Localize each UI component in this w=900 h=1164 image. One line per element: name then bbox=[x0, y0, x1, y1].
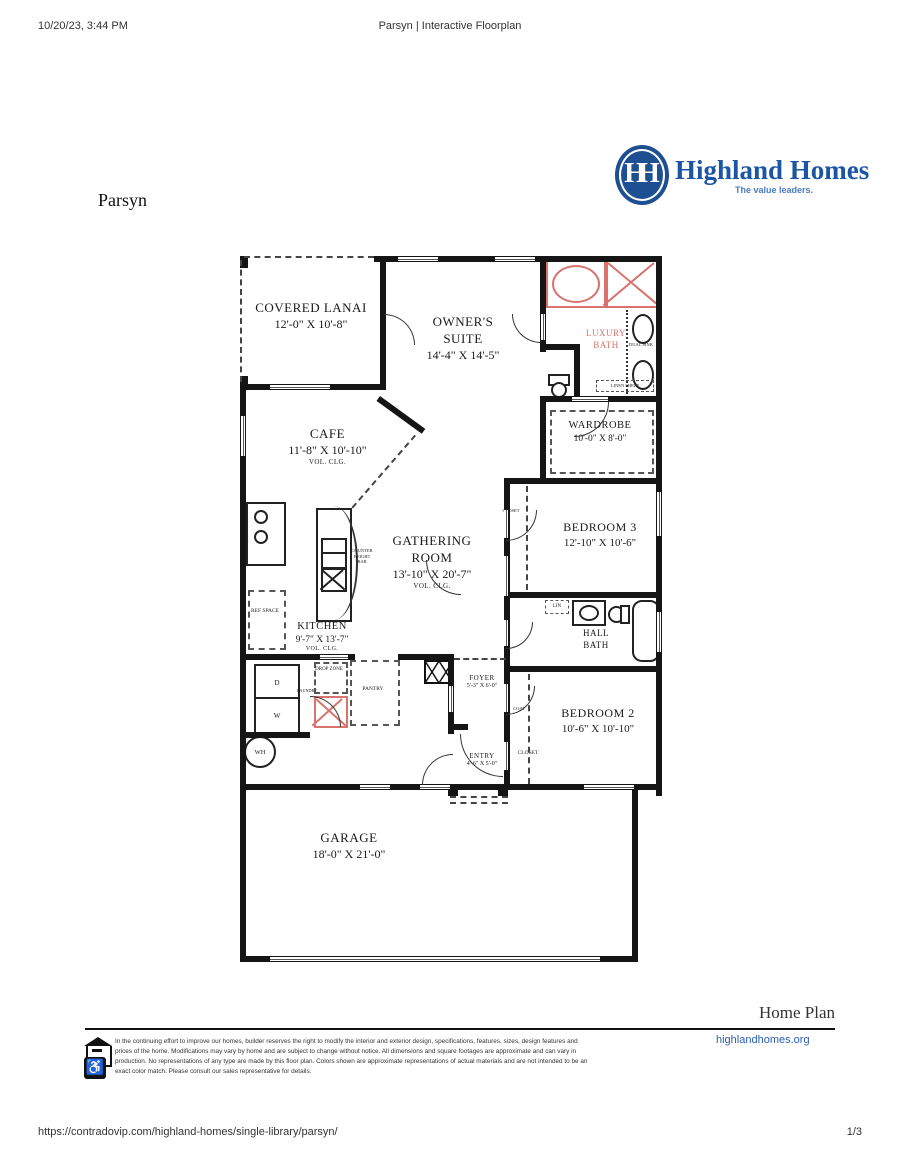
porch-dashed-line bbox=[450, 802, 508, 804]
window-opening bbox=[270, 385, 330, 389]
cooktop-burner-icon bbox=[254, 510, 268, 524]
room-name: BEDROOM 3 bbox=[540, 520, 660, 536]
room-dims: 12'-0" X 10'-8" bbox=[248, 317, 374, 333]
window-pane-line bbox=[506, 742, 507, 770]
room-luxury-bath: LUXURY BATH bbox=[582, 328, 630, 351]
room-hall-bath: HALL BATH bbox=[570, 628, 622, 651]
room-bedroom2: BEDROOM 2 10'-6" X 10'-10" bbox=[538, 706, 658, 736]
lin-label: LIN bbox=[545, 600, 569, 614]
room-dims: 18'-0" X 21'-0" bbox=[284, 847, 414, 863]
wall bbox=[504, 666, 662, 672]
washer-label: W bbox=[274, 712, 281, 720]
window-pane-line bbox=[420, 787, 450, 788]
logo-oval-icon: HH bbox=[615, 145, 669, 205]
dual-sink-label: DUAL SINK bbox=[628, 342, 654, 348]
wall bbox=[240, 790, 246, 962]
window-pane-line bbox=[270, 387, 330, 388]
room-name: FOYER bbox=[454, 674, 510, 683]
closet-front-line bbox=[526, 486, 528, 590]
window-pane-line bbox=[506, 556, 507, 596]
lanai-screen-line bbox=[244, 256, 374, 258]
sink-icon bbox=[632, 314, 654, 344]
brand-tagline: The value leaders. bbox=[675, 185, 813, 195]
room-dims: 10'-6" X 10'-10" bbox=[538, 722, 658, 736]
room-bedroom3: BEDROOM 3 12'-10" X 10'-6" bbox=[540, 520, 660, 550]
sink-icon bbox=[572, 600, 606, 626]
window-pane-line bbox=[659, 492, 660, 536]
room-name: BEDROOM 2 bbox=[538, 706, 658, 722]
window-pane-line bbox=[320, 657, 348, 658]
room-covered-lanai: COVERED LANAI 12'-0" X 10'-8" bbox=[248, 300, 374, 332]
page-title: Parsyn bbox=[98, 190, 147, 211]
disclaimer-text: In the continuing effort to improve our … bbox=[115, 1037, 593, 1077]
window-opening bbox=[584, 785, 634, 789]
dryer-label: D bbox=[274, 679, 279, 687]
print-url: https://contradovip.com/highland-homes/s… bbox=[38, 1126, 338, 1138]
print-preview-page: { "header": { "datetime": "10/20/23, 3:4… bbox=[0, 0, 900, 1164]
brand-logo: HH Highland Homes The value leaders. bbox=[615, 145, 815, 207]
window-opening bbox=[449, 686, 453, 712]
washer-box: W bbox=[254, 697, 300, 734]
print-title: Parsyn | Interactive Floorplan bbox=[0, 20, 900, 32]
room-name: LUXURY BATH bbox=[582, 328, 630, 351]
wall bbox=[450, 724, 468, 730]
accessibility-icon: ♿ bbox=[84, 1057, 106, 1079]
floor-plan: DUAL SINK LINEN SHELF COUNTER HEIGHT BAR… bbox=[240, 256, 670, 968]
cooktop-burner-icon bbox=[254, 530, 268, 544]
room-name: CAFE bbox=[265, 426, 390, 443]
window-opening bbox=[657, 612, 661, 652]
window-opening bbox=[270, 957, 600, 961]
window-opening bbox=[241, 416, 245, 456]
toilet-icon bbox=[620, 605, 630, 624]
window-pane-line bbox=[659, 612, 660, 652]
pantry-label: PANTRY bbox=[351, 686, 395, 693]
room-note: VOL. CLG. bbox=[265, 458, 390, 467]
window-opening bbox=[320, 655, 348, 659]
logo-monogram: HH bbox=[615, 158, 669, 190]
room-dims: 14'-4" X 14'-5" bbox=[398, 348, 528, 364]
window-opening bbox=[495, 257, 535, 261]
door-arc bbox=[506, 510, 537, 541]
wall bbox=[504, 592, 662, 598]
room-owners-suite: OWNER'S SUITE 14'-4" X 14'-5" bbox=[398, 314, 528, 363]
wall bbox=[398, 654, 454, 660]
window-pane-line bbox=[451, 686, 452, 712]
room-cafe: CAFE 11'-8" X 10'-10" VOL. CLG. bbox=[265, 426, 390, 468]
tub-edge bbox=[546, 306, 604, 308]
wall bbox=[632, 790, 638, 962]
tub-icon bbox=[546, 260, 606, 308]
room-garage: GARAGE 18'-0" X 21'-0" bbox=[284, 830, 414, 862]
room-dims: 9'-7" X 13'-7" bbox=[267, 634, 377, 646]
brand-name: Highland Homes bbox=[675, 155, 869, 186]
door-arc bbox=[506, 622, 533, 649]
room-note: VOL. CLG. bbox=[267, 646, 377, 654]
foyer-dashed-line bbox=[454, 658, 506, 660]
room-name: HALL BATH bbox=[570, 628, 622, 651]
door-arc bbox=[422, 754, 453, 785]
window-opening bbox=[541, 314, 545, 340]
porch-dashed-line bbox=[450, 796, 508, 798]
window-pane-line bbox=[398, 259, 438, 260]
water-heater-label: WH bbox=[255, 749, 266, 756]
window-opening bbox=[504, 742, 508, 770]
room-kitchen: KITCHEN 9'-7" X 13'-7" VOL. CLG. bbox=[267, 620, 377, 654]
room-dims: 5'-3" X 6'-0" bbox=[454, 683, 510, 691]
room-name: OWNER'S SUITE bbox=[418, 314, 508, 348]
drop-zone-label: DROP ZONE bbox=[315, 667, 343, 673]
linen-shelf-label: LINEN SHELF bbox=[596, 380, 654, 392]
pantry-box bbox=[350, 660, 400, 726]
wall bbox=[540, 402, 546, 480]
wall bbox=[504, 784, 662, 790]
window-opening bbox=[657, 492, 661, 536]
shower-curb bbox=[606, 306, 656, 308]
room-dims: 11'-8" X 10'-10" bbox=[265, 443, 390, 459]
dryer-box: D bbox=[254, 664, 300, 701]
room-name: GARAGE bbox=[284, 830, 414, 847]
window-opening bbox=[420, 785, 450, 789]
window-pane-line bbox=[543, 314, 544, 340]
lanai-screen-line bbox=[240, 260, 242, 382]
print-page-number: 1/3 bbox=[800, 1126, 862, 1138]
section-title: Home Plan bbox=[85, 1003, 835, 1023]
room-name: KITCHEN bbox=[267, 620, 377, 634]
divider-rule bbox=[85, 1028, 835, 1030]
website-link[interactable]: highlandhomes.org bbox=[716, 1034, 810, 1046]
window-opening bbox=[398, 257, 438, 261]
window-pane-line bbox=[243, 416, 244, 456]
wall bbox=[504, 478, 662, 484]
water-heater-icon: WH bbox=[244, 736, 276, 768]
window-pane-line bbox=[270, 959, 600, 960]
wall bbox=[240, 732, 310, 738]
window-pane-line bbox=[495, 259, 535, 260]
window-opening bbox=[572, 397, 608, 401]
door-arc bbox=[460, 734, 503, 777]
window-pane-line bbox=[360, 787, 390, 788]
window-pane-line bbox=[584, 787, 634, 788]
room-foyer: FOYER 5'-3" X 6'-0" bbox=[454, 674, 510, 691]
window-opening bbox=[360, 785, 390, 789]
room-note: VOL. CLG. bbox=[367, 582, 497, 591]
room-dims: 12'-10" X 10'-6" bbox=[540, 536, 660, 550]
window-opening bbox=[504, 556, 508, 596]
room-name: COVERED LANAI bbox=[248, 300, 374, 317]
wall bbox=[574, 348, 580, 400]
ref-space-label: REF SPACE bbox=[249, 608, 281, 615]
window-pane-line bbox=[572, 399, 608, 400]
